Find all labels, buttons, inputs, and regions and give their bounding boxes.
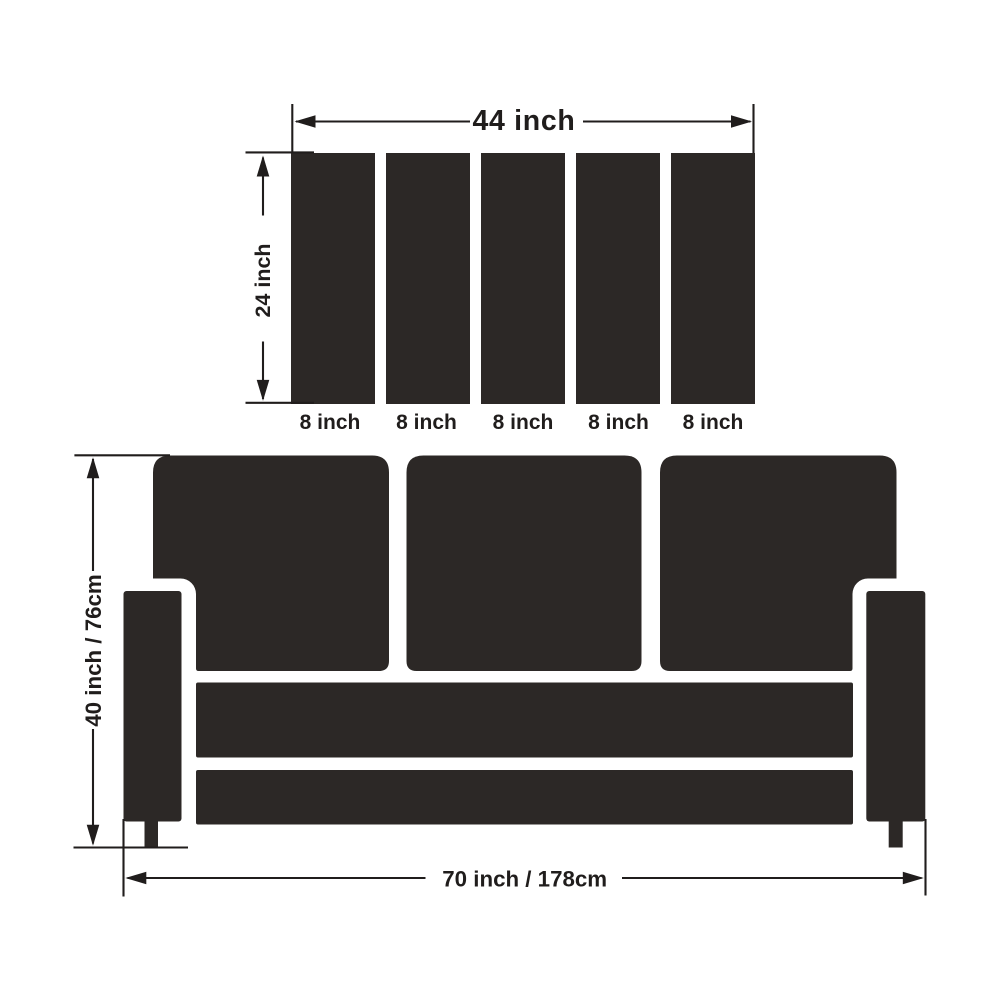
svg-text:24 inch: 24 inch — [251, 243, 275, 317]
svg-text:8 inch: 8 inch — [588, 411, 649, 434]
svg-text:70 inch / 178cm: 70 inch / 178cm — [442, 867, 607, 892]
svg-text:40 inch / 76cm: 40 inch / 76cm — [81, 574, 106, 726]
svg-text:8 inch: 8 inch — [683, 411, 744, 434]
svg-text:8 inch: 8 inch — [396, 411, 457, 434]
svg-text:8 inch: 8 inch — [300, 411, 361, 434]
svg-text:8 inch: 8 inch — [493, 411, 554, 434]
svg-text:44 inch: 44 inch — [472, 105, 575, 137]
